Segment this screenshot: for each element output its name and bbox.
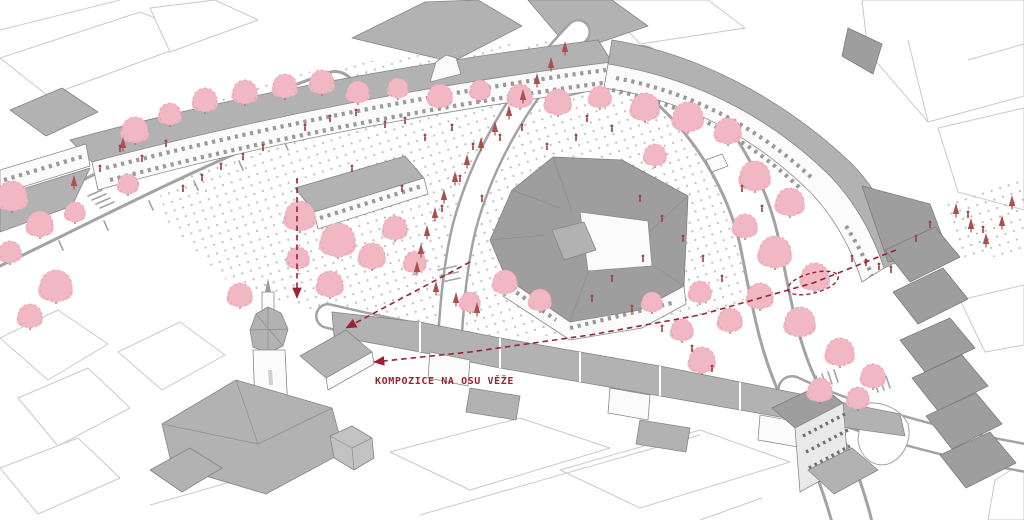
tree: [670, 319, 694, 343]
tree: [38, 270, 73, 304]
drawing-canvas: KOMPOZICE NA OSU VĚŽE: [0, 0, 1024, 520]
axonometric-site-plan: KOMPOZICE NA OSU VĚŽE: [0, 0, 1024, 520]
tree: [0, 241, 22, 265]
tree: [774, 188, 805, 218]
tree: [717, 308, 743, 334]
person-figure: [661, 325, 664, 332]
tree: [227, 283, 253, 309]
person-figure: [890, 266, 893, 273]
annotation-label: KOMPOZICE NA OSU VĚŽE: [375, 374, 514, 387]
tree: [824, 338, 855, 368]
tree: [860, 364, 886, 390]
